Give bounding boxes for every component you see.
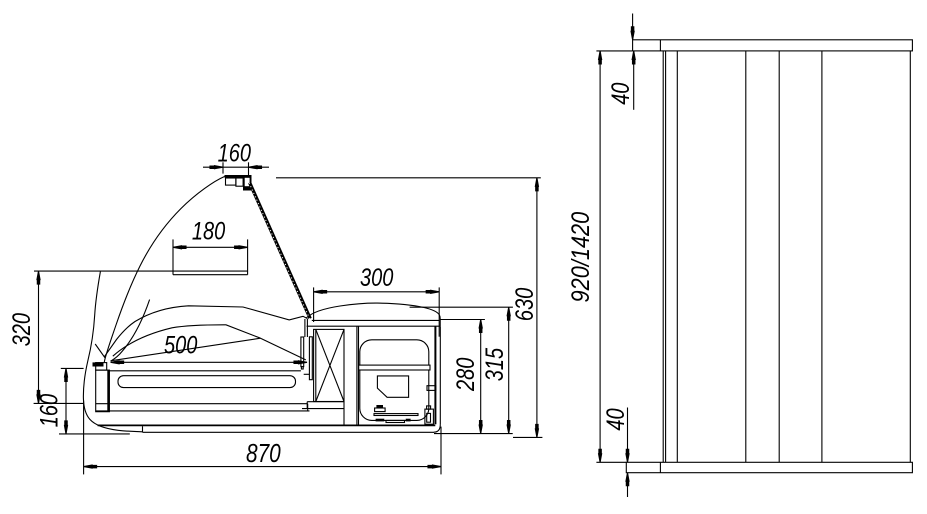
svg-text:920/1420: 920/1420 bbox=[567, 212, 595, 303]
svg-text:160: 160 bbox=[218, 139, 252, 167]
svg-text:320: 320 bbox=[8, 313, 36, 347]
svg-text:180: 180 bbox=[192, 217, 226, 245]
svg-text:500: 500 bbox=[164, 331, 198, 359]
svg-text:40: 40 bbox=[607, 82, 635, 105]
svg-text:315: 315 bbox=[481, 348, 509, 382]
svg-text:160: 160 bbox=[35, 394, 63, 428]
svg-text:280: 280 bbox=[452, 357, 480, 392]
svg-text:630: 630 bbox=[511, 287, 539, 321]
svg-text:300: 300 bbox=[360, 264, 394, 292]
svg-text:40: 40 bbox=[602, 408, 630, 431]
svg-text:870: 870 bbox=[246, 439, 281, 468]
